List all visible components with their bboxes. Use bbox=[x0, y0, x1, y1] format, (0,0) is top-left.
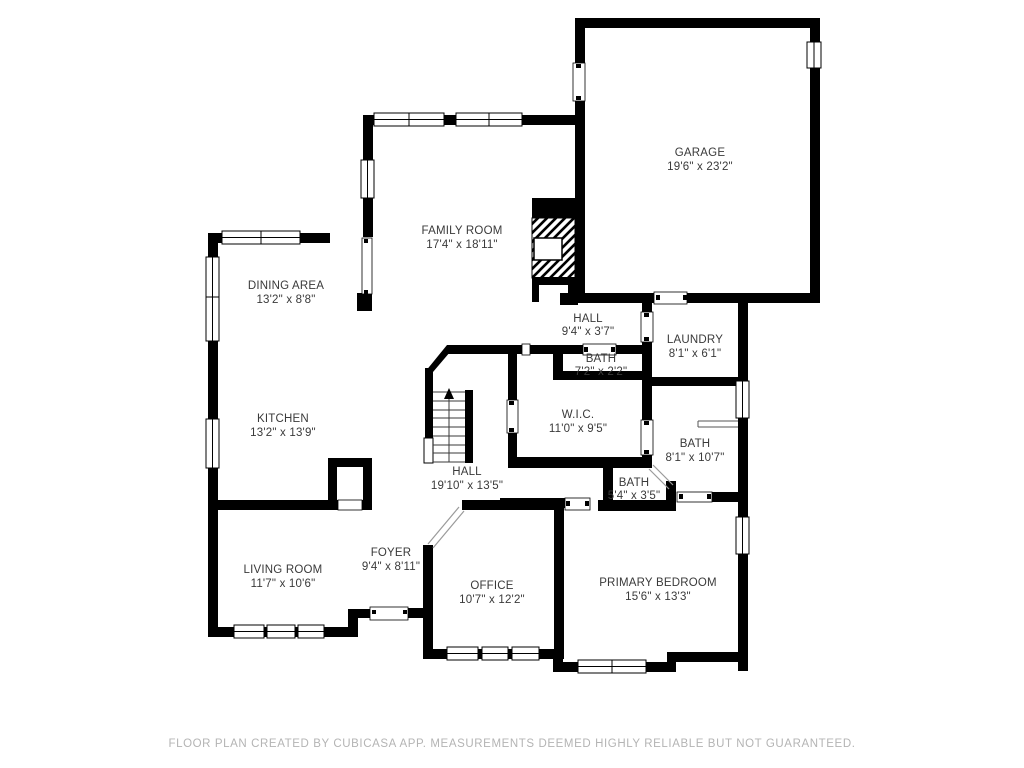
svg-text:HALL: HALL bbox=[573, 313, 603, 325]
svg-text:OFFICE: OFFICE bbox=[470, 580, 513, 592]
footer-disclaimer: FLOOR PLAN CREATED BY CUBICASA APP. MEAS… bbox=[168, 738, 855, 750]
room-label-foyer: FOYER 9'4" x 8'11" bbox=[362, 547, 420, 573]
room-label-primary-bedroom: PRIMARY BEDROOM 15'6" x 13'3" bbox=[599, 577, 717, 603]
window bbox=[447, 647, 539, 660]
family-room-wall-opening bbox=[362, 238, 372, 294]
window bbox=[736, 381, 749, 418]
svg-text:DINING AREA: DINING AREA bbox=[248, 280, 324, 292]
svg-text:13'2" x 13'9": 13'2" x 13'9" bbox=[250, 427, 316, 439]
window bbox=[234, 625, 324, 638]
stair-railing bbox=[424, 438, 433, 463]
svg-text:BATH: BATH bbox=[680, 438, 711, 450]
svg-text:13'2" x 8'8": 13'2" x 8'8" bbox=[256, 294, 315, 306]
room-label-dining-area: DINING AREA 13'2" x 8'8" bbox=[248, 280, 324, 306]
svg-text:PRIMARY BEDROOM: PRIMARY BEDROOM bbox=[599, 577, 717, 589]
svg-text:19'6" x 23'2": 19'6" x 23'2" bbox=[667, 161, 733, 173]
office-double-door-swing bbox=[433, 511, 464, 548]
svg-text:LAUNDRY: LAUNDRY bbox=[667, 334, 723, 346]
bath-door-swing bbox=[653, 465, 673, 485]
floor-plan-page: GARAGE 19'6" x 23'2" FAMILY ROOM 17'4" x… bbox=[0, 0, 1024, 768]
window bbox=[374, 113, 444, 126]
fireplace bbox=[532, 198, 575, 302]
office-double-door-swing bbox=[428, 507, 459, 544]
window bbox=[222, 231, 300, 244]
stair-treads bbox=[433, 392, 465, 462]
svg-text:8'1" x 6'1": 8'1" x 6'1" bbox=[669, 348, 721, 360]
window bbox=[361, 160, 374, 198]
closet-opening bbox=[338, 500, 362, 510]
floor-plan-drawing: GARAGE 19'6" x 23'2" FAMILY ROOM 17'4" x… bbox=[0, 0, 1024, 768]
svg-text:LIVING ROOM: LIVING ROOM bbox=[244, 564, 323, 576]
svg-text:9'4" x 8'11": 9'4" x 8'11" bbox=[362, 561, 420, 573]
room-label-office: OFFICE 10'7" x 12'2" bbox=[459, 580, 525, 606]
bath-door-swing bbox=[649, 469, 669, 489]
room-label-hall-upper: HALL 9'4" x 3'7" bbox=[562, 313, 614, 338]
window bbox=[206, 419, 219, 468]
svg-text:15'6" x 13'3": 15'6" x 13'3" bbox=[625, 591, 691, 603]
svg-text:10'7" x 12'2": 10'7" x 12'2" bbox=[459, 594, 525, 606]
room-label-laundry: LAUNDRY 8'1" x 6'1" bbox=[667, 334, 723, 360]
garage-side-door bbox=[573, 63, 585, 101]
room-label-hall-lower: HALL 19'10" x 13'5" bbox=[431, 466, 503, 492]
svg-text:5'4" x 3'5": 5'4" x 3'5" bbox=[608, 490, 660, 502]
room-label-bath-7: BATH 7'2" x 2'2" bbox=[575, 353, 627, 378]
stairs-up-arrow-icon bbox=[444, 388, 454, 399]
bath-8-door bbox=[641, 420, 653, 455]
room-label-wic: W.I.C. 11'0" x 9'5" bbox=[549, 409, 607, 435]
window bbox=[456, 113, 522, 126]
svg-text:W.I.C.: W.I.C. bbox=[562, 409, 595, 421]
room-label-kitchen: KITCHEN 13'2" x 13'9" bbox=[250, 413, 316, 439]
svg-text:GARAGE: GARAGE bbox=[675, 147, 726, 159]
room-label-bath-8: BATH 8'1" x 10'7" bbox=[665, 438, 724, 464]
room-label-bath-5: BATH 5'4" x 3'5" bbox=[608, 477, 660, 502]
svg-text:11'7" x 10'6": 11'7" x 10'6" bbox=[251, 578, 316, 590]
window bbox=[807, 42, 821, 68]
closet-shelf bbox=[698, 421, 738, 427]
svg-text:HALL: HALL bbox=[452, 466, 482, 478]
room-labels: GARAGE 19'6" x 23'2" FAMILY ROOM 17'4" x… bbox=[244, 147, 733, 606]
svg-text:9'4" x 3'7": 9'4" x 3'7" bbox=[562, 326, 614, 338]
hall-wall-gap bbox=[522, 344, 530, 355]
svg-text:8'1" x 10'7": 8'1" x 10'7" bbox=[665, 452, 724, 464]
room-label-garage: GARAGE 19'6" x 23'2" bbox=[667, 147, 733, 173]
room-label-living-room: LIVING ROOM 11'7" x 10'6" bbox=[244, 564, 323, 590]
svg-text:KITCHEN: KITCHEN bbox=[257, 413, 309, 425]
door-ticks bbox=[364, 64, 711, 614]
room-label-family-room: FAMILY ROOM 17'4" x 18'11" bbox=[421, 225, 502, 251]
window bbox=[736, 517, 749, 554]
svg-text:FAMILY ROOM: FAMILY ROOM bbox=[421, 225, 502, 237]
svg-text:BATH: BATH bbox=[619, 477, 650, 489]
window bbox=[206, 257, 219, 341]
svg-text:11'0" x 9'5": 11'0" x 9'5" bbox=[549, 423, 607, 435]
svg-text:7'2" x 2'2": 7'2" x 2'2" bbox=[575, 366, 627, 378]
svg-text:19'10" x 13'5": 19'10" x 13'5" bbox=[431, 480, 503, 492]
svg-text:17'4" x 18'11": 17'4" x 18'11" bbox=[426, 239, 497, 251]
svg-text:FOYER: FOYER bbox=[371, 547, 412, 559]
door-openings bbox=[338, 63, 712, 620]
svg-text:BATH: BATH bbox=[586, 353, 617, 365]
window bbox=[578, 660, 646, 673]
